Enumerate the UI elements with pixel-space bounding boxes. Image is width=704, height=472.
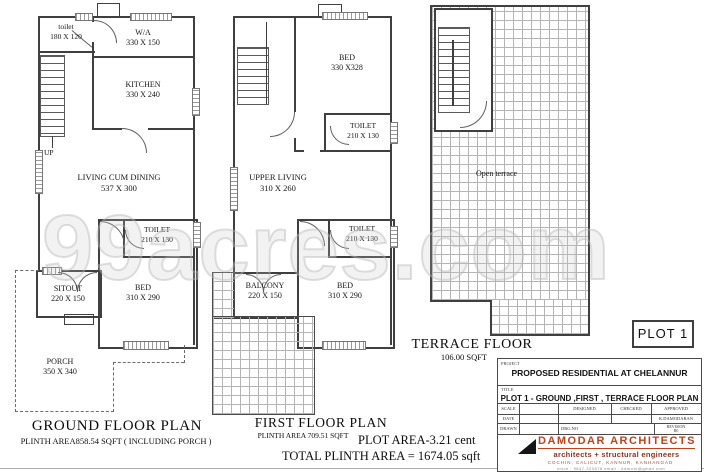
porch-boundary xyxy=(184,345,185,363)
room-dim: 210 X 130 xyxy=(334,234,390,244)
porch-boundary xyxy=(113,362,114,412)
window xyxy=(193,222,201,248)
room-dim: 180 X 120 xyxy=(38,32,94,42)
staircase xyxy=(40,55,65,137)
room-dim: 220 X 150 xyxy=(42,294,94,304)
room-name: UPPER LIVING xyxy=(237,172,319,183)
room-label-bed-ff: BED 330 X328 xyxy=(318,53,376,73)
room-name: TOILET xyxy=(334,224,390,234)
room-label-sitout: SITOUT 220 X 150 xyxy=(42,284,94,304)
room-name: PORCH xyxy=(34,357,86,367)
terrace-plan-subtitle: 106.00 SQFT xyxy=(428,352,500,362)
info-grid: SCALE DESIGNED CHECKED APPROVED DATE K.D… xyxy=(498,403,701,434)
firm-tagline: architects + structural engineers xyxy=(538,450,695,459)
firm-name: DAMODAR ARCHITECTS xyxy=(538,435,698,447)
wall-segment xyxy=(430,5,432,302)
step xyxy=(64,314,94,325)
firm-contact: voice : 9847-320878 email : ddarchi@gmai… xyxy=(526,466,696,471)
project-label: PROJECT xyxy=(501,361,520,366)
room-name: BED xyxy=(316,281,374,291)
revision-value: R0 xyxy=(651,429,701,433)
divider xyxy=(498,385,701,386)
porch-boundary xyxy=(15,270,39,271)
room-dim: 210 X 130 xyxy=(336,131,390,141)
room-name: SITOUT xyxy=(42,284,94,294)
wall-segment xyxy=(490,334,590,336)
window xyxy=(75,13,93,21)
room-name: TOILET xyxy=(336,121,390,131)
first-plan-title: FIRST FLOOR PLAN xyxy=(242,415,400,431)
title-value: PLOT 1 - GROUND ,FIRST , TERRACE FLOOR P… xyxy=(498,394,701,403)
wall-segment xyxy=(92,128,122,130)
porch-boundary xyxy=(113,362,184,363)
room-name: BED xyxy=(318,53,376,63)
title-label: TITLE xyxy=(501,387,514,392)
window xyxy=(322,12,368,20)
first-plan-subtitle: PLINTH AREA 709.51 SQFT xyxy=(250,431,356,440)
room-name: KITCHEN xyxy=(108,80,178,90)
wall-segment xyxy=(328,256,392,258)
room-label-toilet2-ff: TOILET 210 X 130 xyxy=(334,224,390,243)
room-label-living: LIVING CUM DINING 537 X 300 xyxy=(60,172,178,194)
up-label: UP xyxy=(44,148,54,157)
room-dim: 310 X 260 xyxy=(237,183,319,194)
project-value: PROPOSED RESIDENTIAL AT CHELANNUR xyxy=(498,368,701,378)
wall-segment xyxy=(430,5,590,7)
firm-cities: COCHIN, CALICUT, KANNUR, KANHANGAD xyxy=(523,460,698,465)
window xyxy=(192,88,200,116)
room-dim: 330 X328 xyxy=(318,63,376,73)
room-name: BED xyxy=(114,283,172,293)
room-label-kitchen: KITCHEN 330 X 240 xyxy=(108,80,178,100)
terrace-hatch xyxy=(490,300,588,334)
window xyxy=(322,341,366,350)
room-label-toilet1-ff: TOILET 210 X 130 xyxy=(336,121,390,140)
drawing-sheet: toilet 180 X 120 W/A 330 X 150 KITCHEN 3… xyxy=(0,0,704,472)
stair-arrow-line xyxy=(52,136,53,148)
open-terrace-hatch xyxy=(212,272,235,319)
window xyxy=(390,226,398,248)
room-label-upper-living: UPPER LIVING 310 X 260 xyxy=(237,172,319,194)
drawn-cell: DRAWN xyxy=(498,423,520,434)
door-swing xyxy=(270,112,295,137)
room-label-bed-gf: BED 310 X 290 xyxy=(114,283,172,303)
room-label-bed2-ff: BED 310 X 290 xyxy=(316,281,374,301)
plot-area-note: PLOT AREA-3.21 cent xyxy=(358,433,475,448)
wall-segment xyxy=(588,5,590,336)
window xyxy=(130,13,172,21)
room-name: toilet xyxy=(38,22,94,32)
firm-logo-triangle xyxy=(518,439,536,454)
wall-segment xyxy=(324,113,392,115)
wall-segment xyxy=(294,16,296,112)
wall-segment xyxy=(324,113,326,152)
wall-segment xyxy=(328,219,330,258)
window xyxy=(123,341,169,350)
room-name: TOILET xyxy=(128,225,186,235)
wall-segment xyxy=(430,300,492,302)
staircase xyxy=(237,47,269,105)
terrace-plan-title: TERRACE FLOOR xyxy=(402,337,542,353)
room-label-porch: PORCH 350 X 340 xyxy=(34,357,86,377)
window xyxy=(35,150,43,194)
firm-underline xyxy=(538,448,695,449)
room-name: W/A xyxy=(112,28,174,38)
wall-segment xyxy=(320,150,392,152)
room-dim: 220 X 150 xyxy=(235,291,295,301)
open-terrace-hatch xyxy=(212,316,315,415)
room-dim: 210 X 130 xyxy=(128,235,186,245)
open-terrace-label: Open terrace xyxy=(476,169,517,178)
room-dim: 310 X 290 xyxy=(114,293,172,303)
room-dim: 350 X 340 xyxy=(34,367,86,377)
wall-segment xyxy=(92,56,195,58)
room-label-balcony: BALCONY 220 X 150 xyxy=(235,281,295,301)
stair-rail xyxy=(266,22,267,104)
drawn-value-cell xyxy=(519,423,559,434)
room-dim: 310 X 290 xyxy=(316,291,374,301)
wall-segment xyxy=(294,150,304,152)
total-plinth-note: TOTAL PLINTH AREA = 1674.05 sqft xyxy=(282,449,480,464)
window xyxy=(390,122,398,144)
room-dim: 330 X 240 xyxy=(108,90,178,100)
wall-segment xyxy=(38,51,95,53)
door-swing xyxy=(122,128,147,153)
room-name: BALCONY xyxy=(235,281,295,291)
room-label-work-area: W/A 330 X 150 xyxy=(112,28,174,48)
title-block: PROJECT PROPOSED RESIDENTIAL AT CHELANNU… xyxy=(497,358,702,472)
wall-segment xyxy=(148,128,195,130)
porch-boundary xyxy=(15,411,114,412)
room-dim: 330 X 150 xyxy=(112,38,174,48)
room-name: LIVING CUM DINING xyxy=(60,172,178,183)
drg-no-cell: DRG.NO xyxy=(558,423,655,434)
wall-segment xyxy=(233,16,235,272)
wall-segment xyxy=(490,300,492,336)
plot-number-badge: PLOT 1 xyxy=(632,320,694,348)
room-label-toilet2-gf: TOILET 210 X 130 xyxy=(128,225,186,244)
wall-segment xyxy=(233,16,392,18)
stair-rail xyxy=(452,40,454,106)
room-label-toilet-gf: toilet 180 X 120 xyxy=(38,22,94,41)
ground-plan-subtitle: PLINTH AREA858.54 SQFT ( INCLUDING PORCH… xyxy=(6,436,226,446)
room-dim: 537 X 300 xyxy=(60,183,178,194)
porch-boundary xyxy=(15,270,16,412)
revision-cell: REVISION R0 xyxy=(651,423,701,434)
ground-plan-title: GROUND FLOOR PLAN xyxy=(26,418,208,435)
wall-segment xyxy=(123,256,194,258)
